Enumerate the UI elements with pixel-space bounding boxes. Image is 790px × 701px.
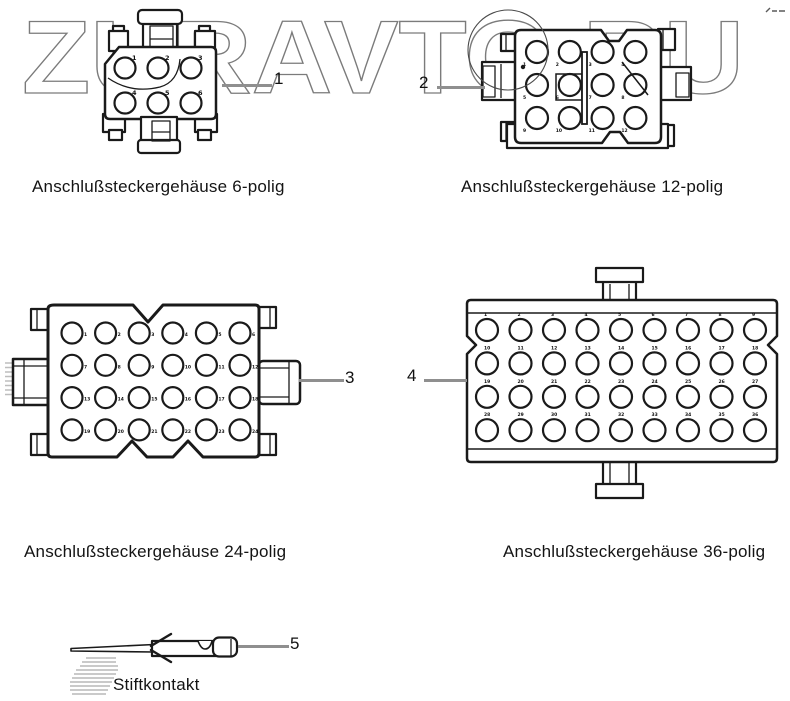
caption-12-polig: Anschlußsteckergehäuse 12-polig	[461, 177, 723, 197]
pin-cavity	[644, 419, 666, 441]
callout-5: 5	[290, 634, 299, 654]
pin-cavity	[162, 387, 183, 408]
pin-number: 8	[621, 95, 624, 101]
pin-cavity	[230, 323, 251, 344]
pin-number: 12	[621, 128, 627, 134]
pin-cavity	[95, 387, 116, 408]
pin-cavity	[677, 319, 699, 341]
pin-number: 5	[618, 312, 621, 318]
bottom-tab	[596, 461, 643, 498]
pin-number: 6	[252, 332, 255, 338]
pin-cavity	[129, 355, 150, 376]
pin-number: 9	[151, 364, 154, 370]
pin-cavity	[577, 352, 599, 374]
pin-number: 4	[585, 312, 588, 318]
pin-cavity	[624, 74, 646, 96]
leader-line-4	[424, 379, 467, 382]
pin-number: 1	[84, 332, 87, 338]
pin-number: 6	[652, 312, 655, 318]
pin-number: 9	[752, 312, 755, 318]
pin-cavity	[577, 386, 599, 408]
pin-number: 11	[218, 364, 224, 370]
pin-number: 28	[484, 412, 490, 418]
pin-cavity	[711, 352, 733, 374]
pin-cavity	[95, 355, 116, 376]
pin-cavity	[476, 352, 498, 374]
callout-1: 1	[274, 69, 283, 89]
pin-number: 1	[484, 312, 487, 318]
leader-line-5	[238, 645, 289, 648]
pin-number: 35	[719, 412, 725, 418]
pin-needle	[71, 645, 154, 653]
pin-cavity	[62, 387, 83, 408]
pin-number: 19	[484, 379, 490, 385]
pin-number: 34	[685, 412, 691, 418]
pin-cavity	[510, 419, 532, 441]
pin-number: 33	[652, 412, 658, 418]
pin-cavity	[95, 419, 116, 440]
pin-number: 22	[185, 429, 191, 435]
callout-3: 3	[345, 368, 354, 388]
pin-cavity	[510, 352, 532, 374]
pin-cavity	[592, 74, 614, 96]
pin-cavity	[559, 41, 581, 63]
pin-cavity	[677, 352, 699, 374]
pin-number: 22	[585, 379, 591, 385]
caption-stiftkontakt: Stiftkontakt	[113, 675, 200, 695]
pin-number: 7	[685, 312, 688, 318]
pin-number: 4	[132, 89, 137, 97]
pin-number: 2	[556, 62, 559, 68]
pin-cavity	[129, 387, 150, 408]
pin-number: 5	[523, 95, 526, 101]
connector-36-polig-diagram: 1234567891011121314151617181920212223242…	[420, 258, 790, 506]
pin-cavity	[610, 352, 632, 374]
pin-number: 7	[589, 95, 592, 101]
pin-cavity	[196, 323, 217, 344]
pin-number: 9	[523, 128, 526, 134]
top-tab	[596, 268, 643, 303]
pin-cavity	[62, 419, 83, 440]
pin-cavity	[510, 319, 532, 341]
hatch-fragment	[70, 658, 118, 694]
pin-number: 23	[218, 429, 224, 435]
pin-cavity	[677, 386, 699, 408]
pin-cavity	[644, 386, 666, 408]
pin-number: 15	[151, 397, 157, 403]
leader-line-2	[437, 86, 485, 89]
pin-cavity	[230, 355, 251, 376]
pin-number: 25	[685, 379, 691, 385]
pin-cavity	[577, 319, 599, 341]
pin-cavity	[162, 323, 183, 344]
caption-6-polig: Anschlußsteckergehäuse 6-polig	[32, 177, 285, 197]
pin-number: 10	[185, 364, 191, 370]
pin-number: 24	[252, 429, 258, 435]
pin-cavity	[559, 107, 581, 129]
leader-line-3	[299, 379, 344, 382]
pin-number: 20	[118, 429, 124, 435]
pin-cavity	[744, 419, 766, 441]
pin-number: 12	[551, 345, 557, 351]
pin-cavity	[711, 419, 733, 441]
pin-cavity	[610, 386, 632, 408]
pin-number: 17	[719, 345, 725, 351]
top-latch	[138, 10, 182, 52]
pin-cavity	[543, 386, 565, 408]
pin-cavity	[476, 419, 498, 441]
pin-number: 3	[589, 62, 592, 68]
pin-number: 15	[652, 345, 658, 351]
pin-cavity	[62, 323, 83, 344]
pin-number: 13	[585, 345, 591, 351]
pin-cavity	[644, 352, 666, 374]
leader-line-1	[222, 84, 272, 87]
pin-cavity	[577, 419, 599, 441]
pin-number: 21	[551, 379, 557, 385]
pin-number: 20	[518, 379, 524, 385]
pin-cavity	[526, 41, 548, 63]
pin-cavity	[644, 319, 666, 341]
pin-number: 6	[556, 95, 559, 101]
right-latch	[259, 361, 300, 404]
pin-number: 11	[589, 128, 595, 134]
pin-number: 8	[118, 364, 121, 370]
pin-cavity	[744, 386, 766, 408]
pin-number: 7	[84, 364, 87, 370]
pin-cavity	[592, 41, 614, 63]
pin-number: 18	[752, 345, 758, 351]
pin-cavity	[543, 352, 565, 374]
caption-36-polig: Anschlußsteckergehäuse 36-polig	[503, 542, 765, 562]
pin-cavity	[610, 319, 632, 341]
pin-number: 13	[84, 397, 90, 403]
pin-number: 14	[118, 397, 124, 403]
connector-12-polig-diagram: 123456789101112	[455, 12, 705, 167]
pin-number: 6	[198, 89, 203, 97]
callout-4: 4	[407, 366, 416, 386]
pin-cavity	[677, 419, 699, 441]
pin-cavity	[559, 74, 581, 96]
callout-2: 2	[419, 73, 428, 93]
connector-6-polig-diagram: 123456	[85, 2, 255, 160]
pin-number: 5	[218, 332, 221, 338]
pin-number: 16	[185, 397, 191, 403]
pin-cavity	[62, 355, 83, 376]
pin-cavity	[196, 387, 217, 408]
pin-cavity	[476, 319, 498, 341]
pin-number: 2	[518, 312, 521, 318]
pin-cavity	[230, 387, 251, 408]
contact-end-cap	[213, 638, 237, 657]
pin-number: 19	[84, 429, 90, 435]
pin-number: 26	[719, 379, 725, 385]
pin-number: 10	[556, 128, 562, 134]
diagram-page: ZURAVTO.RU 123456	[0, 0, 790, 701]
pin-cavity	[711, 319, 733, 341]
pin-cavity	[162, 419, 183, 440]
pin-cavity	[476, 386, 498, 408]
pin-cavity	[510, 386, 532, 408]
pin-number: 30	[551, 412, 557, 418]
pin-number: 23	[618, 379, 624, 385]
pin-number: 4	[185, 332, 188, 338]
pin-number: 10	[484, 345, 490, 351]
pin-number: 11	[518, 345, 524, 351]
pin-cavity	[624, 41, 646, 63]
pin-cavity	[196, 419, 217, 440]
pin-cavity	[95, 323, 116, 344]
pin-cavity	[711, 386, 733, 408]
pin-cavity	[543, 419, 565, 441]
pin-cavity	[592, 107, 614, 129]
pin-cavity	[744, 352, 766, 374]
pin-number: 18	[252, 397, 258, 403]
pin-number: 3	[198, 54, 203, 62]
pin-cavity	[162, 355, 183, 376]
ink-smudge	[764, 4, 788, 16]
pin-number: 31	[585, 412, 591, 418]
pin-cavity	[129, 323, 150, 344]
pin-number: 36	[752, 412, 758, 418]
pin-cavity	[230, 419, 251, 440]
pin-number: 2	[165, 54, 170, 62]
index-dot	[521, 65, 525, 69]
pin-cavity	[129, 419, 150, 440]
pin-number: 14	[618, 345, 624, 351]
pin-number: 24	[652, 379, 658, 385]
pin-cavity	[744, 319, 766, 341]
bottom-latch	[138, 117, 180, 153]
pin-number: 5	[165, 89, 170, 97]
pin-number: 2	[118, 332, 121, 338]
caption-24-polig: Anschlußsteckergehäuse 24-polig	[24, 542, 286, 562]
pin-number: 21	[151, 429, 157, 435]
pin-number: 16	[685, 345, 691, 351]
pin-cavity	[543, 319, 565, 341]
pin-number: 8	[719, 312, 722, 318]
pin-number: 12	[252, 364, 258, 370]
pin-cavity	[610, 419, 632, 441]
pin-number: 1	[132, 54, 137, 62]
center-divider	[582, 52, 587, 124]
pin-number: 32	[618, 412, 624, 418]
pin-number: 3	[551, 312, 554, 318]
pin-number: 17	[218, 397, 224, 403]
pin-cavity	[624, 107, 646, 129]
pin-number: 27	[752, 379, 758, 385]
pin-number: 3	[151, 332, 154, 338]
pin-number: 29	[518, 412, 524, 418]
pin-cavity	[196, 355, 217, 376]
pin-cavity	[526, 107, 548, 129]
